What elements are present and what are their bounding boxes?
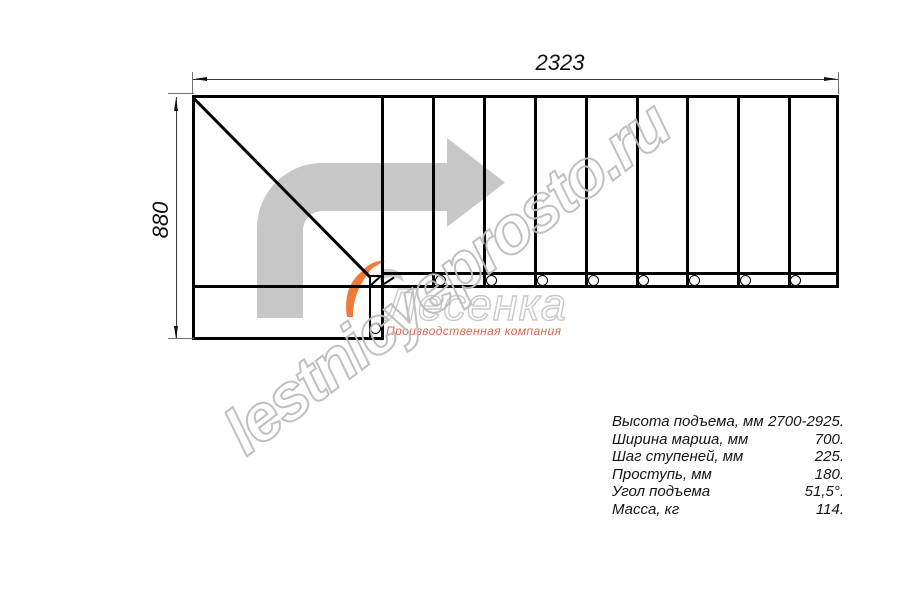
spec-row: Ширина марша, мм 700. xyxy=(612,431,844,449)
specs-table: Высота подъема, мм 2700-2925. Ширина мар… xyxy=(612,413,844,519)
spec-label: Проступь, мм xyxy=(612,466,712,484)
dim-arrow-icon xyxy=(194,77,207,81)
plan-right-edge xyxy=(836,95,839,288)
step-line xyxy=(483,95,486,288)
height-dimension-value: 880 xyxy=(148,190,174,250)
baluster-circle xyxy=(689,275,700,286)
rail-band-bottom-line xyxy=(192,285,839,288)
extension-line xyxy=(168,338,194,339)
step-line xyxy=(686,95,689,288)
spec-value: 180. xyxy=(815,466,844,484)
landing-bottom-edge xyxy=(192,337,384,340)
spec-value: 114. xyxy=(816,501,844,519)
step-line xyxy=(432,95,435,288)
baluster-circle xyxy=(537,275,548,286)
baluster-circle xyxy=(740,275,751,286)
dim-arrow-icon xyxy=(174,98,178,111)
extension-line xyxy=(838,72,839,94)
rail-band-top-line xyxy=(381,272,839,275)
baluster-circle xyxy=(790,275,801,286)
spec-label: Шаг ступеней, мм xyxy=(612,448,743,466)
spec-label: Высота подъема, мм xyxy=(612,413,764,431)
step-line xyxy=(381,95,384,340)
spec-row: Проступь, мм 180. xyxy=(612,466,844,484)
spec-value: 225. xyxy=(815,448,844,466)
baluster-circle xyxy=(486,275,497,286)
baluster-circle xyxy=(638,275,649,286)
stair-plan-canvas: Лесенка 2323 880 Производственная компан… xyxy=(0,0,900,600)
step-line xyxy=(636,95,639,288)
dim-arrow-icon xyxy=(174,326,178,339)
step-line xyxy=(585,95,588,288)
baluster-circle xyxy=(435,275,446,286)
spec-label: Угол подъема xyxy=(612,483,710,501)
spec-row: Угол подъема 51,5°. xyxy=(612,483,844,501)
spec-row: Высота подъема, мм 2700-2925. xyxy=(612,413,844,431)
spec-label: Масса, кг xyxy=(612,501,679,519)
logo-flame-icon xyxy=(346,264,376,317)
spec-value: 51,5°. xyxy=(805,483,844,501)
corner-hatch xyxy=(383,277,394,285)
dim-arrow-icon xyxy=(824,77,837,81)
height-dimension-line xyxy=(176,97,177,338)
logo-tagline: Производственная компания xyxy=(386,324,561,338)
spec-value: 700. xyxy=(815,431,844,449)
baluster-circle xyxy=(588,275,599,286)
width-dimension-line xyxy=(193,79,838,80)
step-line xyxy=(534,95,537,288)
winder-diagonal-line xyxy=(192,96,372,278)
spec-row: Шаг ступеней, мм 225. xyxy=(612,448,844,466)
spec-value: 2700-2925. xyxy=(768,413,844,431)
step-line xyxy=(788,95,791,288)
width-dimension-value: 2323 xyxy=(520,50,600,76)
plan-left-edge xyxy=(192,95,195,340)
extension-line xyxy=(168,93,194,94)
spec-row: Масса, кг 114. xyxy=(612,501,844,519)
step-line xyxy=(737,95,740,288)
baluster-circle xyxy=(370,323,381,334)
extension-line xyxy=(192,72,193,94)
spec-label: Ширина марша, мм xyxy=(612,431,748,449)
watermark-text: lestnicyeprosto.ru xyxy=(210,85,684,468)
plan-top-edge xyxy=(192,95,839,98)
